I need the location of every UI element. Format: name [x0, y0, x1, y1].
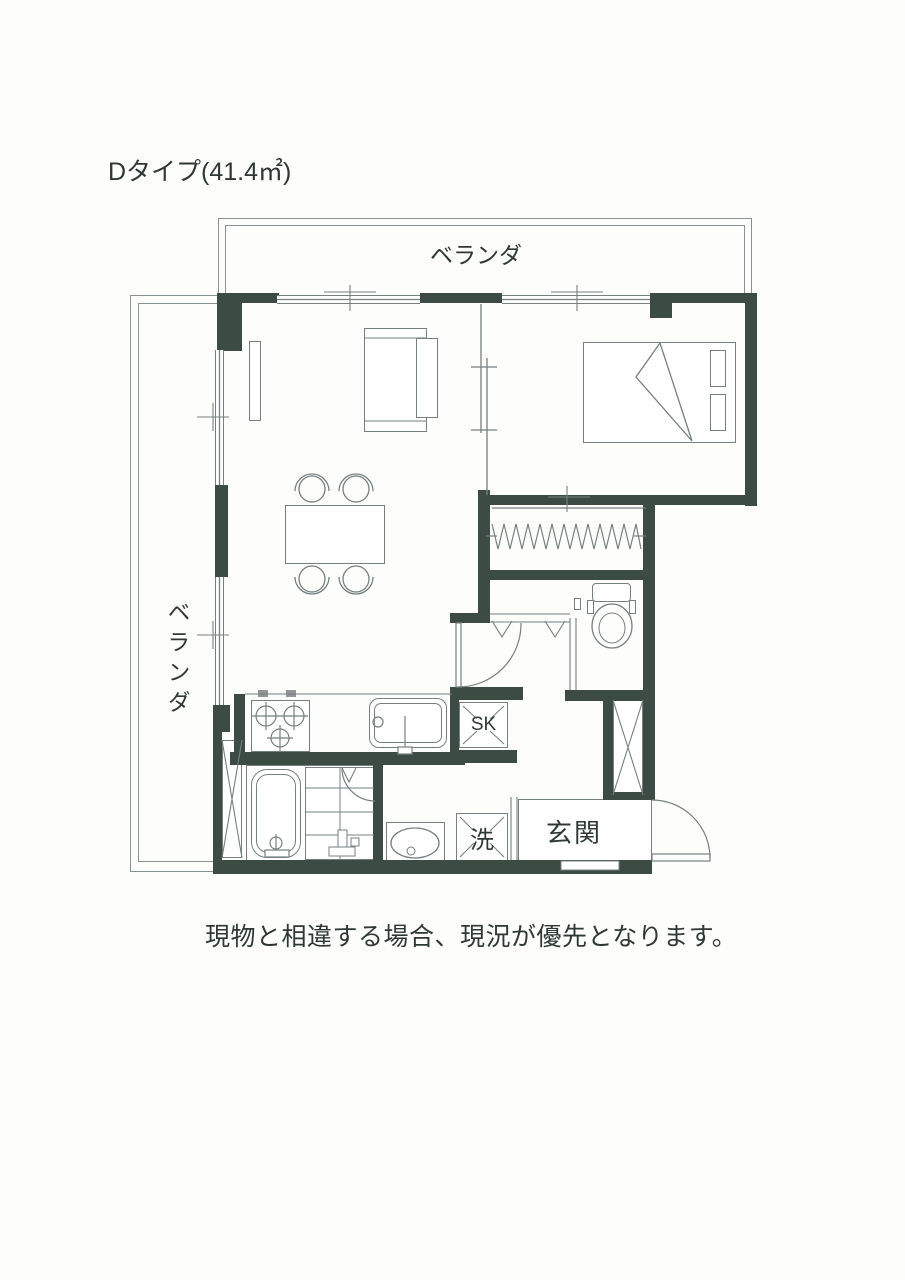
sink-faucet	[373, 716, 412, 754]
entrance-label: 玄関	[546, 813, 602, 850]
washbasin-bowl	[391, 828, 439, 858]
laundry-label: 洗	[456, 813, 508, 861]
bed-fold-triangle	[636, 343, 692, 441]
stove-burners	[252, 702, 308, 751]
floorplan-page: Dタイプ(41.4㎡)	[0, 0, 905, 1280]
page-title: Dタイプ(41.4㎡)	[108, 152, 291, 188]
disclaimer-caption: 現物と相違する場合、現況が優先となります。	[205, 917, 737, 953]
partition-sliding-door	[471, 304, 497, 495]
entrance-sill-notch	[561, 861, 619, 870]
plan-linework	[0, 0, 905, 1280]
veranda-left-label: ベランダ	[160, 600, 194, 720]
closet-hanger-zigzag	[486, 508, 646, 549]
toilet-bowl	[592, 604, 632, 648]
veranda-top-label: ベランダ	[430, 236, 522, 270]
bathtub-faucet	[265, 834, 289, 857]
bath-grid	[306, 768, 374, 859]
slop-sink-label: SK	[459, 702, 508, 748]
dimension-ticks	[197, 285, 603, 649]
dining-chairs	[295, 474, 373, 594]
window-center-lines	[220, 300, 651, 706]
sofa-lines	[364, 338, 427, 421]
door-arcs	[342, 623, 710, 861]
opening-v-marks	[342, 621, 565, 782]
